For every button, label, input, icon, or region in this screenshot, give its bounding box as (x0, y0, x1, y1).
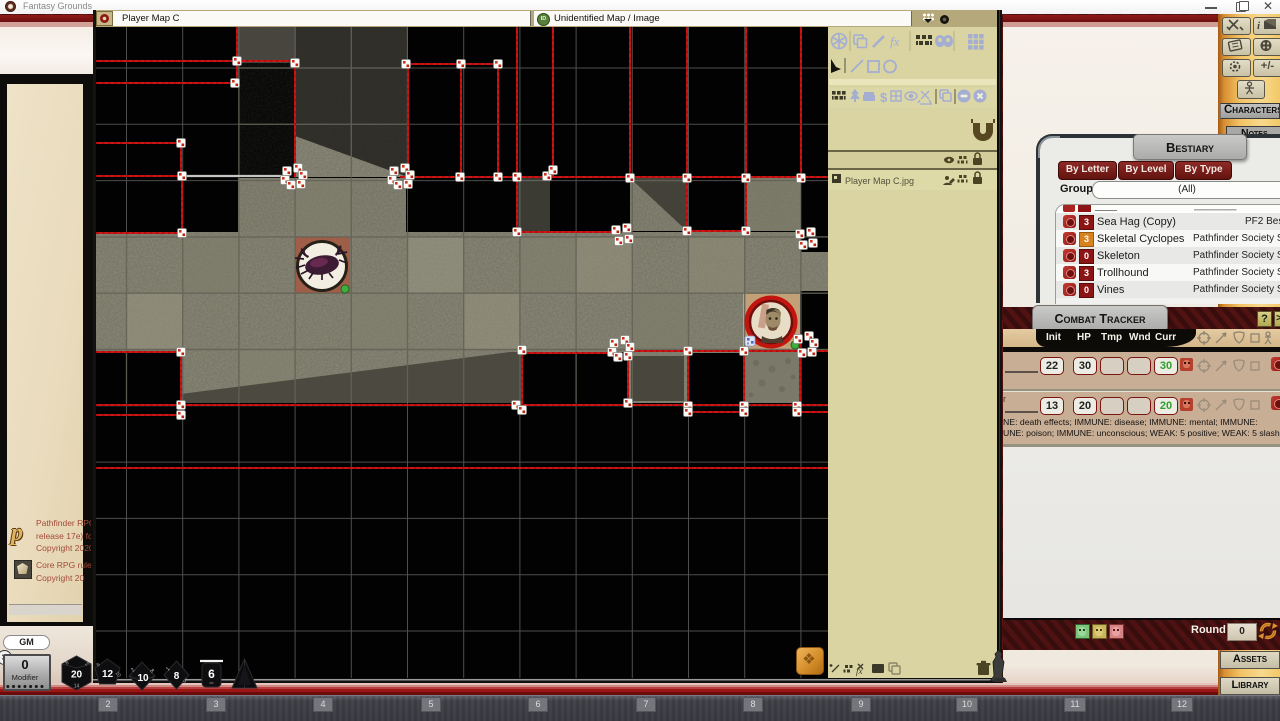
svg-text:Player Map C.jpg: Player Map C.jpg (845, 176, 914, 186)
svg-text:8: 8 (174, 671, 180, 682)
svg-text:fx: fx (890, 34, 900, 49)
svg-text:12: 12 (102, 669, 114, 680)
svg-text:i: i (1257, 20, 1261, 31)
svg-text:$: $ (880, 90, 888, 105)
svg-text:14: 14 (74, 684, 80, 690)
svg-text:6: 6 (208, 667, 215, 681)
svg-text:20: 20 (71, 670, 83, 681)
svg-text:six: six (209, 681, 214, 685)
svg-text:fx: fx (856, 666, 863, 676)
svg-text:10: 10 (137, 673, 149, 684)
